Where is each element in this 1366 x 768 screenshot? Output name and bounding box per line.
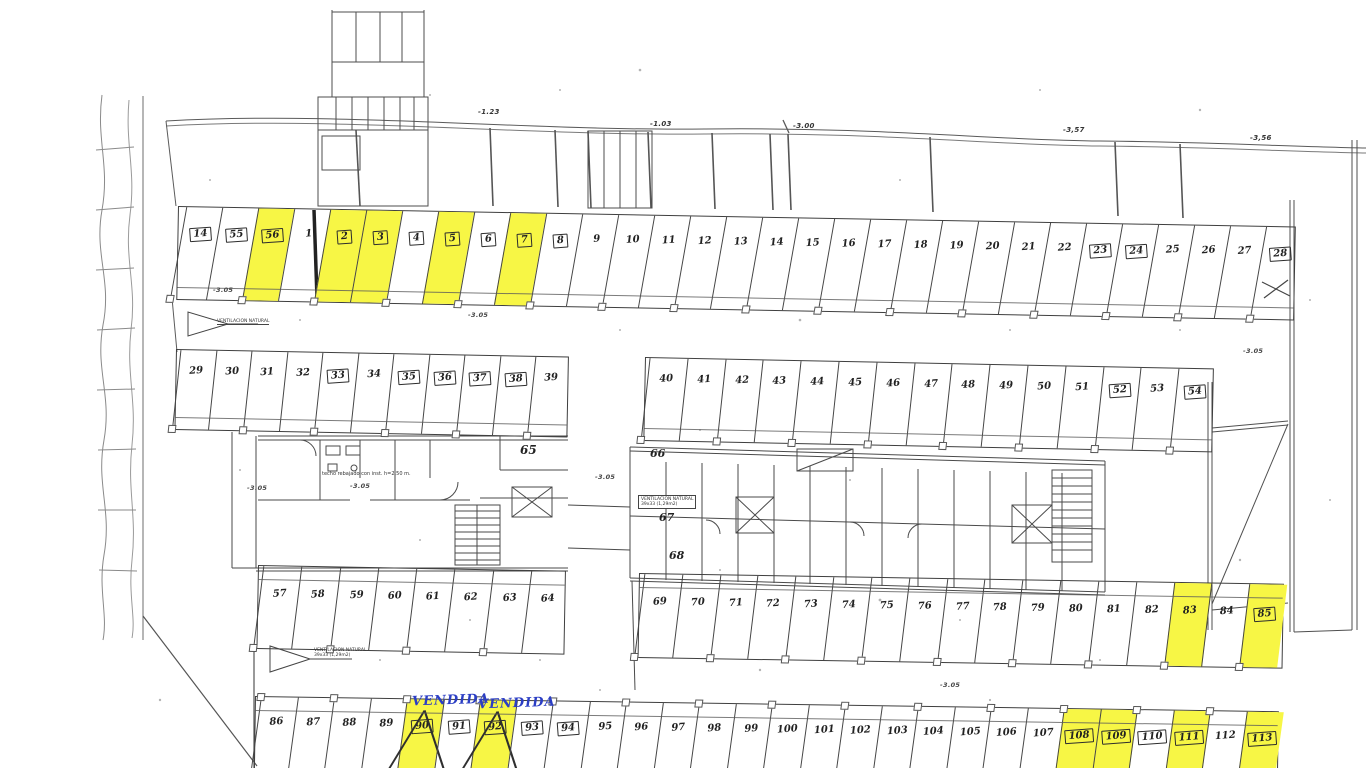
parking-stall: 48 — [943, 364, 990, 447]
core-left-block — [232, 432, 630, 571]
ceiling-note: techo rebajado con inst. h=2,50 m. — [322, 472, 411, 478]
stall-number: 74 — [842, 600, 857, 611]
elevator-shaft-icon — [736, 497, 774, 533]
connector-walls — [356, 128, 1183, 218]
stall-number: 60 — [387, 591, 402, 602]
elevation-label: -3.05 — [213, 286, 233, 294]
parking-stall: 52 — [1094, 367, 1141, 450]
stall-number: 43 — [773, 377, 788, 388]
parking-stall: 34 — [350, 353, 394, 433]
stall-number: 12 — [697, 236, 712, 247]
stall-number: 16 — [841, 239, 856, 250]
stall-number: 53 — [1151, 384, 1166, 395]
stall-number: 26 — [1201, 246, 1216, 257]
parking-stall: 39 — [527, 357, 571, 437]
parking-row-3-right: 69 70 71 72 73 74 — [638, 573, 1284, 669]
stall-number: 100 — [776, 724, 798, 735]
parking-stall: 47 — [905, 363, 952, 446]
stall-number: 96 — [634, 722, 649, 733]
parking-stall: 49 — [981, 365, 1028, 448]
stall-number: 44 — [811, 377, 826, 388]
stall-number: 62 — [463, 592, 478, 603]
parking-stall: 38 — [492, 356, 536, 436]
stall-number: 59 — [349, 590, 364, 601]
stall-number: 18 — [913, 240, 928, 251]
stall-number: 83 — [1183, 606, 1198, 617]
parking-stall: 35 — [385, 354, 429, 434]
stall-number: 2 — [336, 230, 352, 245]
stall-number: 10 — [625, 235, 640, 246]
stall-number: 41 — [697, 375, 712, 386]
lower-left-walls — [143, 616, 257, 768]
elevation-label: -3.05 — [468, 311, 488, 319]
elevation-label: -3.05 — [940, 681, 960, 689]
stall-number: 113 — [1246, 731, 1276, 747]
stall-number: 23 — [1088, 243, 1111, 258]
stall-number: 85 — [1254, 607, 1277, 623]
room-label-67: 67 — [659, 511, 674, 524]
elevation-label: -3,56 — [1250, 134, 1272, 142]
stall-number: 93 — [520, 720, 543, 736]
scan-artifact — [96, 95, 143, 640]
stall-number: 104 — [922, 726, 944, 737]
stall-number: 84 — [1220, 607, 1235, 618]
stall-number: 30 — [225, 366, 240, 377]
stall-number: 24 — [1124, 244, 1147, 259]
parking-row-3-left: 57 58 59 60 61 62 — [256, 565, 565, 655]
stall-number: 46 — [886, 379, 901, 390]
stall-number: 86 — [269, 717, 284, 728]
parking-stall: 54 — [1170, 369, 1217, 452]
stall-number: 108 — [1064, 728, 1094, 744]
stall-number: 75 — [880, 601, 895, 612]
elevator-shaft-icon — [512, 487, 552, 517]
elevation-label: -1.23 — [478, 108, 500, 116]
stall-number: 76 — [918, 602, 933, 613]
stall-number: 35 — [398, 370, 421, 385]
parking-stall: 31 — [243, 351, 287, 431]
stall-number: 50 — [1037, 382, 1052, 393]
handwritten-vendida-note: VENDIDA — [478, 695, 556, 713]
stall-number: 112 — [1214, 731, 1236, 742]
parking-stall: 42 — [716, 360, 763, 443]
stall-number: 48 — [962, 380, 977, 391]
stall-number: 40 — [659, 374, 674, 385]
stall-number: 38 — [505, 372, 528, 387]
stall-number: 49 — [999, 381, 1014, 392]
room-label-68: 68 — [669, 549, 684, 562]
stall-number: 8 — [552, 234, 568, 249]
stall-number: 21 — [1021, 242, 1036, 253]
stall-number: 6 — [480, 232, 496, 247]
stall-number: 22 — [1057, 243, 1072, 254]
stall-number: 3 — [372, 230, 388, 245]
parking-stall: 53 — [1132, 368, 1179, 451]
elevation-label: -3.05 — [247, 484, 267, 492]
parking-stall: 37 — [456, 356, 500, 436]
stall-number: 39 — [545, 373, 560, 384]
stall-number: 1 — [304, 229, 312, 239]
stall-number: 31 — [260, 367, 275, 378]
stall-number: 52 — [1109, 383, 1132, 398]
floor-plan-sheet: 14 55 56 1 2 3 — [0, 0, 1366, 768]
parking-stall: 40 — [641, 358, 688, 441]
stall-number: 51 — [1075, 383, 1090, 394]
stall-number: 110 — [1137, 729, 1167, 745]
stall-number: 25 — [1165, 245, 1180, 256]
stall-number: 94 — [556, 721, 579, 737]
stall-number: 70 — [691, 598, 706, 609]
stall-number: 17 — [877, 240, 892, 251]
elevator-shaft-icon — [1012, 505, 1052, 543]
stall-number: 57 — [272, 589, 287, 600]
stall-number: 69 — [653, 597, 668, 608]
elevation-label: -3,57 — [1063, 126, 1085, 134]
stall-number: 34 — [367, 369, 382, 380]
parking-stall: 44 — [792, 361, 839, 444]
stall-number: 29 — [189, 366, 204, 377]
ventilation-size: 39x33 (1,29m2) — [641, 502, 693, 507]
stall-number: 73 — [804, 600, 819, 611]
parking-stall: 46 — [867, 363, 914, 446]
elevation-label: -3.05 — [595, 473, 615, 481]
stall-number: 71 — [729, 598, 744, 609]
parking-stall: 64 — [521, 571, 569, 654]
stall-number: 109 — [1100, 729, 1130, 745]
parking-stall: 32 — [279, 352, 323, 432]
stall-number: 14 — [189, 227, 212, 242]
stall-number: 102 — [849, 725, 871, 736]
elevation-label: -3.05 — [1243, 347, 1263, 355]
stall-number: 9 — [592, 235, 600, 245]
stall-number: 37 — [469, 371, 492, 386]
stall-number: 105 — [959, 727, 981, 738]
stall-number: 11 — [661, 236, 676, 247]
ramp-area — [1208, 140, 1357, 632]
stall-number: 28 — [1268, 247, 1291, 262]
stall-number: 54 — [1184, 385, 1207, 400]
parking-stall: 33 — [314, 353, 358, 433]
stall-number: 27 — [1237, 246, 1252, 257]
room-label-66: 66 — [650, 447, 665, 460]
stall-number: 61 — [425, 592, 440, 603]
ventilation-note: VENTILACION NATURAL 39x33 (1,29m2) — [638, 495, 696, 509]
stall-number: 45 — [848, 378, 863, 389]
stall-number: 42 — [735, 376, 750, 387]
elevation-label: -3.05 — [350, 482, 370, 490]
stall-number: 111 — [1173, 730, 1203, 746]
stall-number: 32 — [296, 368, 311, 379]
stall-number: 56 — [261, 228, 284, 243]
parking-stall: 36 — [421, 355, 465, 435]
elevation-label: -3.00 — [793, 122, 815, 130]
parking-stall: 51 — [1056, 366, 1103, 449]
stall-number: 99 — [743, 724, 758, 735]
parking-stall: 29 — [172, 350, 216, 430]
stall-number: 79 — [1031, 603, 1046, 614]
stall-number: 107 — [1032, 728, 1054, 739]
stall-number: 78 — [993, 603, 1008, 614]
room-label-65: 65 — [520, 443, 537, 457]
parking-stall: 43 — [754, 360, 801, 443]
parking-stall: 41 — [679, 359, 726, 442]
stall-number: 20 — [985, 242, 1000, 253]
parking-stall: 50 — [1019, 366, 1066, 449]
stall-number: 82 — [1145, 605, 1160, 616]
stall-number: 58 — [310, 590, 325, 601]
parking-stall: 45 — [830, 362, 877, 445]
stall-number: 5 — [444, 232, 460, 247]
stall-number: 91 — [447, 719, 470, 735]
stall-number: 7 — [516, 233, 532, 248]
ventilation-note: VENTILACION NATURAL 39x33 (1,29m2) — [314, 648, 366, 658]
ventilation-note: VENTILACION NATURAL — [217, 319, 269, 325]
stall-number: 97 — [670, 723, 685, 734]
stall-number: 80 — [1069, 604, 1084, 615]
stall-number: 98 — [707, 723, 722, 734]
stall-number: 87 — [305, 717, 320, 728]
stall-number: 106 — [995, 727, 1017, 738]
parking-row-2-right: 40 41 42 43 44 45 — [643, 357, 1214, 452]
stall-number: 95 — [597, 722, 612, 733]
stall-number: 77 — [956, 602, 971, 613]
stall-number: 33 — [327, 368, 350, 383]
stall-number: 14 — [769, 238, 784, 249]
stall-number: 81 — [1107, 605, 1122, 616]
stall-number: 47 — [924, 380, 939, 391]
stall-number: 15 — [805, 238, 820, 249]
stall-number: 72 — [766, 599, 781, 610]
stall-number: 55 — [225, 228, 248, 243]
parking-row-2-left: 29 30 31 32 33 34 — [174, 349, 568, 438]
stall-number: 89 — [378, 718, 393, 729]
stall-number: 19 — [949, 241, 964, 252]
stall-number: 36 — [434, 370, 457, 385]
stall-number: 64 — [540, 594, 555, 605]
stall-number: 63 — [502, 593, 517, 604]
ventilation-size: 39x33 (1,29m2) — [314, 653, 366, 658]
stall-number: 13 — [733, 237, 748, 248]
stall-number: 101 — [813, 725, 835, 736]
elevation-label: -1.03 — [650, 120, 672, 128]
stall-number: 88 — [342, 718, 357, 729]
staircase — [1052, 470, 1092, 562]
stall-number: 103 — [886, 726, 908, 737]
stall-number: 4 — [408, 231, 424, 246]
parking-stall: 85 — [1239, 584, 1287, 667]
parking-stall: 30 — [208, 351, 252, 431]
